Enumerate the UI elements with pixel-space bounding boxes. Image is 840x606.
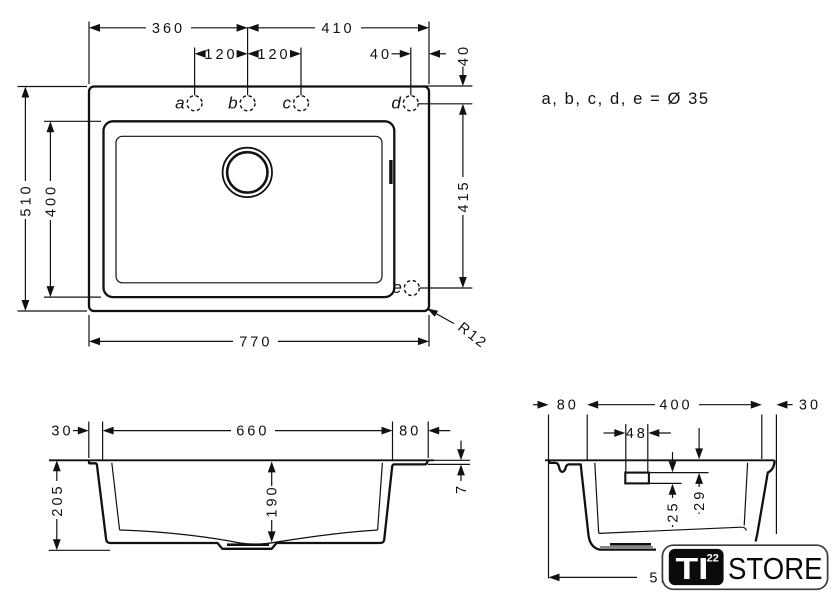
svg-text:400: 400 — [659, 398, 692, 414]
svg-text:7: 7 — [454, 486, 470, 494]
svg-text:e: e — [392, 278, 401, 297]
svg-text:80: 80 — [557, 398, 579, 414]
svg-text:410: 410 — [321, 21, 354, 37]
svg-text:360: 360 — [152, 21, 185, 37]
svg-text:510: 510 — [18, 183, 34, 216]
svg-text:190: 190 — [265, 484, 281, 517]
svg-text:80: 80 — [399, 424, 421, 440]
svg-text:415: 415 — [456, 179, 472, 212]
svg-text:25: 25 — [666, 500, 682, 522]
svg-text:48: 48 — [626, 426, 648, 442]
svg-text:a: a — [175, 94, 184, 113]
svg-text:205: 205 — [50, 483, 66, 516]
svg-text:120: 120 — [257, 47, 290, 63]
svg-text:30: 30 — [799, 398, 821, 414]
svg-text:c: c — [283, 94, 292, 113]
svg-text:b: b — [228, 94, 237, 113]
svg-text:400: 400 — [43, 184, 59, 217]
svg-text:770: 770 — [239, 334, 272, 350]
svg-text:40: 40 — [370, 47, 392, 63]
svg-text:120: 120 — [204, 47, 237, 63]
svg-text:d: d — [391, 94, 401, 113]
svg-text:TI: TI — [676, 552, 709, 586]
svg-text:a, b, c, d, e = Ø 35: a, b, c, d, e = Ø 35 — [542, 90, 710, 108]
svg-text:22: 22 — [707, 553, 719, 565]
svg-text:40: 40 — [456, 44, 472, 66]
svg-text:660: 660 — [236, 424, 269, 440]
svg-text:29: 29 — [692, 489, 708, 511]
svg-text:30: 30 — [51, 424, 73, 440]
svg-text:STORE: STORE — [728, 551, 823, 586]
